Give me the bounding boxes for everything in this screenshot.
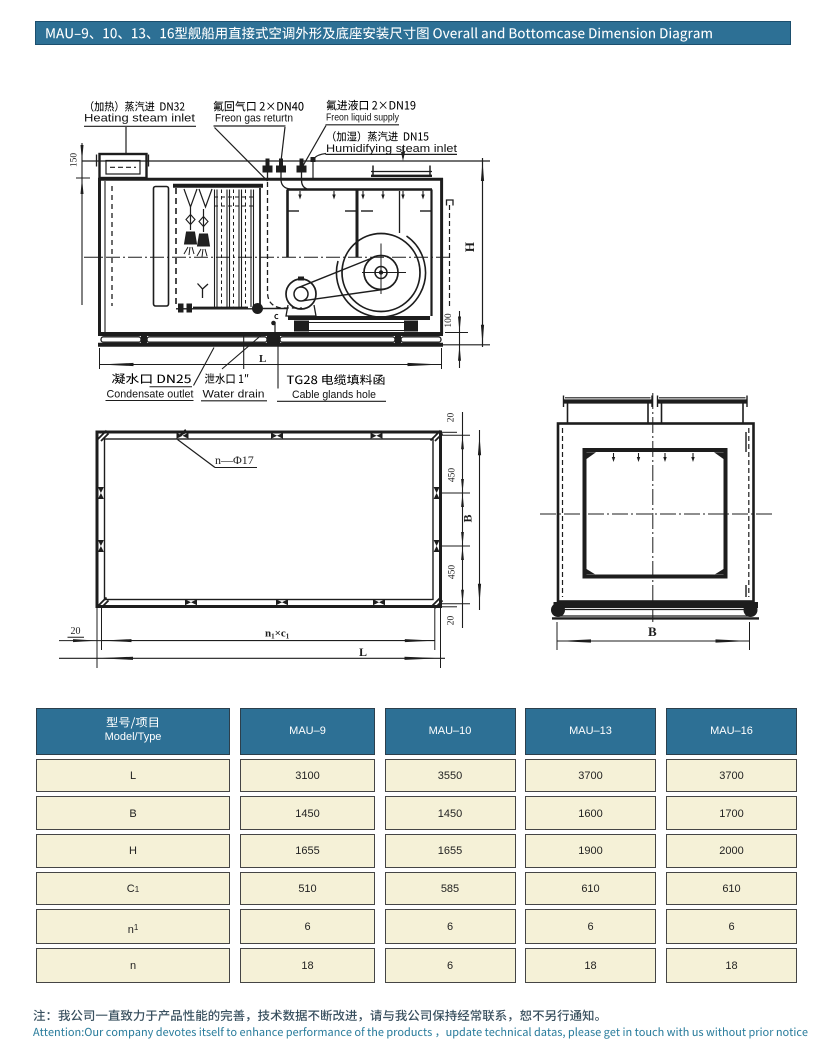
svg-text:450: 450 — [448, 565, 458, 580]
svg-text:Humidifying steam inlet: Humidifying steam inlet — [326, 143, 457, 155]
svg-text:Water drain: Water drain — [203, 389, 265, 401]
svg-text:L: L — [259, 353, 266, 365]
svg-text:Freon liquid supply: Freon liquid supply — [326, 112, 400, 124]
svg-text:n1×c1: n1×c1 — [265, 628, 290, 641]
svg-text:450: 450 — [448, 468, 458, 483]
svg-text:Heating steam inlet: Heating steam inlet — [84, 113, 195, 125]
svg-text:20: 20 — [447, 616, 457, 626]
svg-text:20: 20 — [71, 626, 81, 637]
svg-text:B: B — [461, 514, 475, 522]
svg-text:L: L — [359, 645, 367, 659]
svg-text:150: 150 — [70, 153, 80, 168]
svg-text:Condensate outlet: Condensate outlet — [107, 389, 194, 401]
svg-text:100: 100 — [444, 313, 454, 328]
svg-text:Cable glands hole: Cable glands hole — [292, 389, 376, 401]
svg-text:B: B — [648, 624, 657, 639]
svg-text:n—Φ17: n—Φ17 — [215, 453, 254, 467]
svg-text:20: 20 — [447, 413, 457, 423]
svg-text:Freon gas returtn: Freon gas returtn — [215, 113, 293, 125]
svg-text:H: H — [462, 242, 477, 252]
